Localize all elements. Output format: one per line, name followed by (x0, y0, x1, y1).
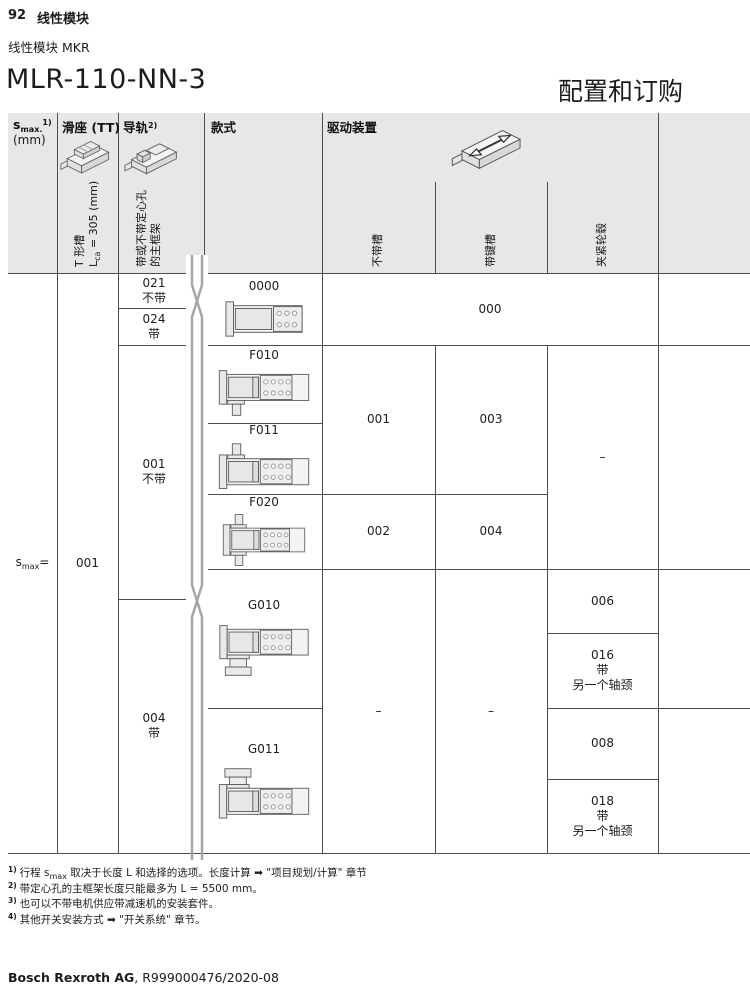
drive-value-no-groove-dash-g: – (322, 569, 435, 853)
drive-value-002: 002 (322, 494, 435, 569)
col-header-style: 款式 (211, 117, 236, 136)
model-code: G010 (248, 598, 280, 613)
drive-unit-icon (450, 118, 532, 178)
drive-value-006: 006 (547, 569, 658, 633)
footnote-3: 3)也可以不带电机供应带减速机的安装套件。 (8, 897, 367, 913)
col-header-smax-unit: (mm) (13, 133, 46, 147)
model-cell-F010: F010 (206, 345, 322, 423)
rail-option-024: 024 带 (118, 308, 190, 345)
rail-option-001: 001 不带 (118, 345, 190, 599)
module-motor-down-icon (215, 621, 313, 679)
slide-code-cell: 001 (57, 273, 118, 853)
drive-value-008: 008 (547, 708, 658, 779)
drive-value-016: 016 带 另一个轴颈 (547, 633, 658, 708)
drive-subcol-label-clamp-hub: 夹紧轮毂 (595, 223, 609, 267)
drive-value-001: 001 (322, 345, 435, 494)
model-cell-F011: F011 (206, 423, 322, 494)
model-code: F010 (249, 348, 279, 363)
footer-doc-ref: , R999000476/2020-08 (134, 970, 279, 985)
smax-equals-cell: smax= (8, 273, 57, 853)
model-cell-G010: G010 (206, 569, 322, 708)
model-cell-0000: 0000 (206, 273, 322, 345)
module-shaft-down-icon (215, 366, 313, 420)
drive-value-clamp-dash-f: – (547, 345, 658, 569)
col-header-smax: smax.1) (13, 117, 52, 132)
drive-value-018: 018 带 另一个轴颈 (547, 779, 658, 853)
arrow-icon: ➡ (107, 914, 116, 926)
drive-value-keyway-dash-g: – (435, 569, 547, 853)
rail-option-021: 021 不带 (118, 273, 190, 308)
drive-subcol-label-keyway: 带键槽 (484, 234, 498, 267)
page-footer: Bosch Rexroth AG, R999000476/2020-08 (8, 970, 279, 985)
module-shaft-both-icon (218, 512, 310, 568)
module-motor-up-icon (215, 765, 313, 819)
col-header-drive: 驱动装置 (327, 117, 377, 136)
module-shaft-up-icon (215, 441, 313, 495)
rail-option-004: 004 带 (118, 599, 190, 853)
document-page: 92 线性模块 线性模块 MKR MLR-110-NN-3 配置和订购 (0, 0, 750, 992)
drive-value-000: 000 (322, 273, 658, 345)
rail-icon (124, 130, 182, 180)
drive-value-004: 004 (435, 494, 547, 569)
drive-value-003: 003 (435, 345, 547, 494)
model-code: G011 (248, 742, 280, 757)
drive-subcol-label-no-groove: 不带槽 (371, 234, 385, 267)
rail-vertical-label: 带或不带定心孔 的主框架 (135, 190, 163, 267)
slide-vertical-label: T 形槽 Lca = 305 (mm) (73, 181, 102, 267)
model-code: F020 (249, 495, 279, 510)
footnote-2: 2)带定心孔的主框架长度只能最多为 L = 5500 mm。 (8, 882, 367, 898)
model-code: F011 (249, 423, 279, 438)
slide-carriage-icon (60, 132, 114, 178)
footnotes: 1)行程 smax 取决于长度 L 和选择的选项。长度计算 ➡ "项目规划/计算… (8, 866, 367, 928)
arrow-icon: ➡ (254, 867, 263, 879)
footnote-1: 1)行程 smax 取决于长度 L 和选择的选项。长度计算 ➡ "项目规划/计算… (8, 866, 367, 882)
footnote-4: 4)其他开关安装方式 ➡ "开关系统" 章节。 (8, 913, 367, 929)
model-code: 0000 (249, 279, 280, 294)
footer-company: Bosch Rexroth AG (8, 970, 134, 985)
model-cell-F020: F020 (206, 494, 322, 569)
module-plain-icon (222, 299, 306, 339)
model-cell-G011: G011 (206, 708, 322, 853)
